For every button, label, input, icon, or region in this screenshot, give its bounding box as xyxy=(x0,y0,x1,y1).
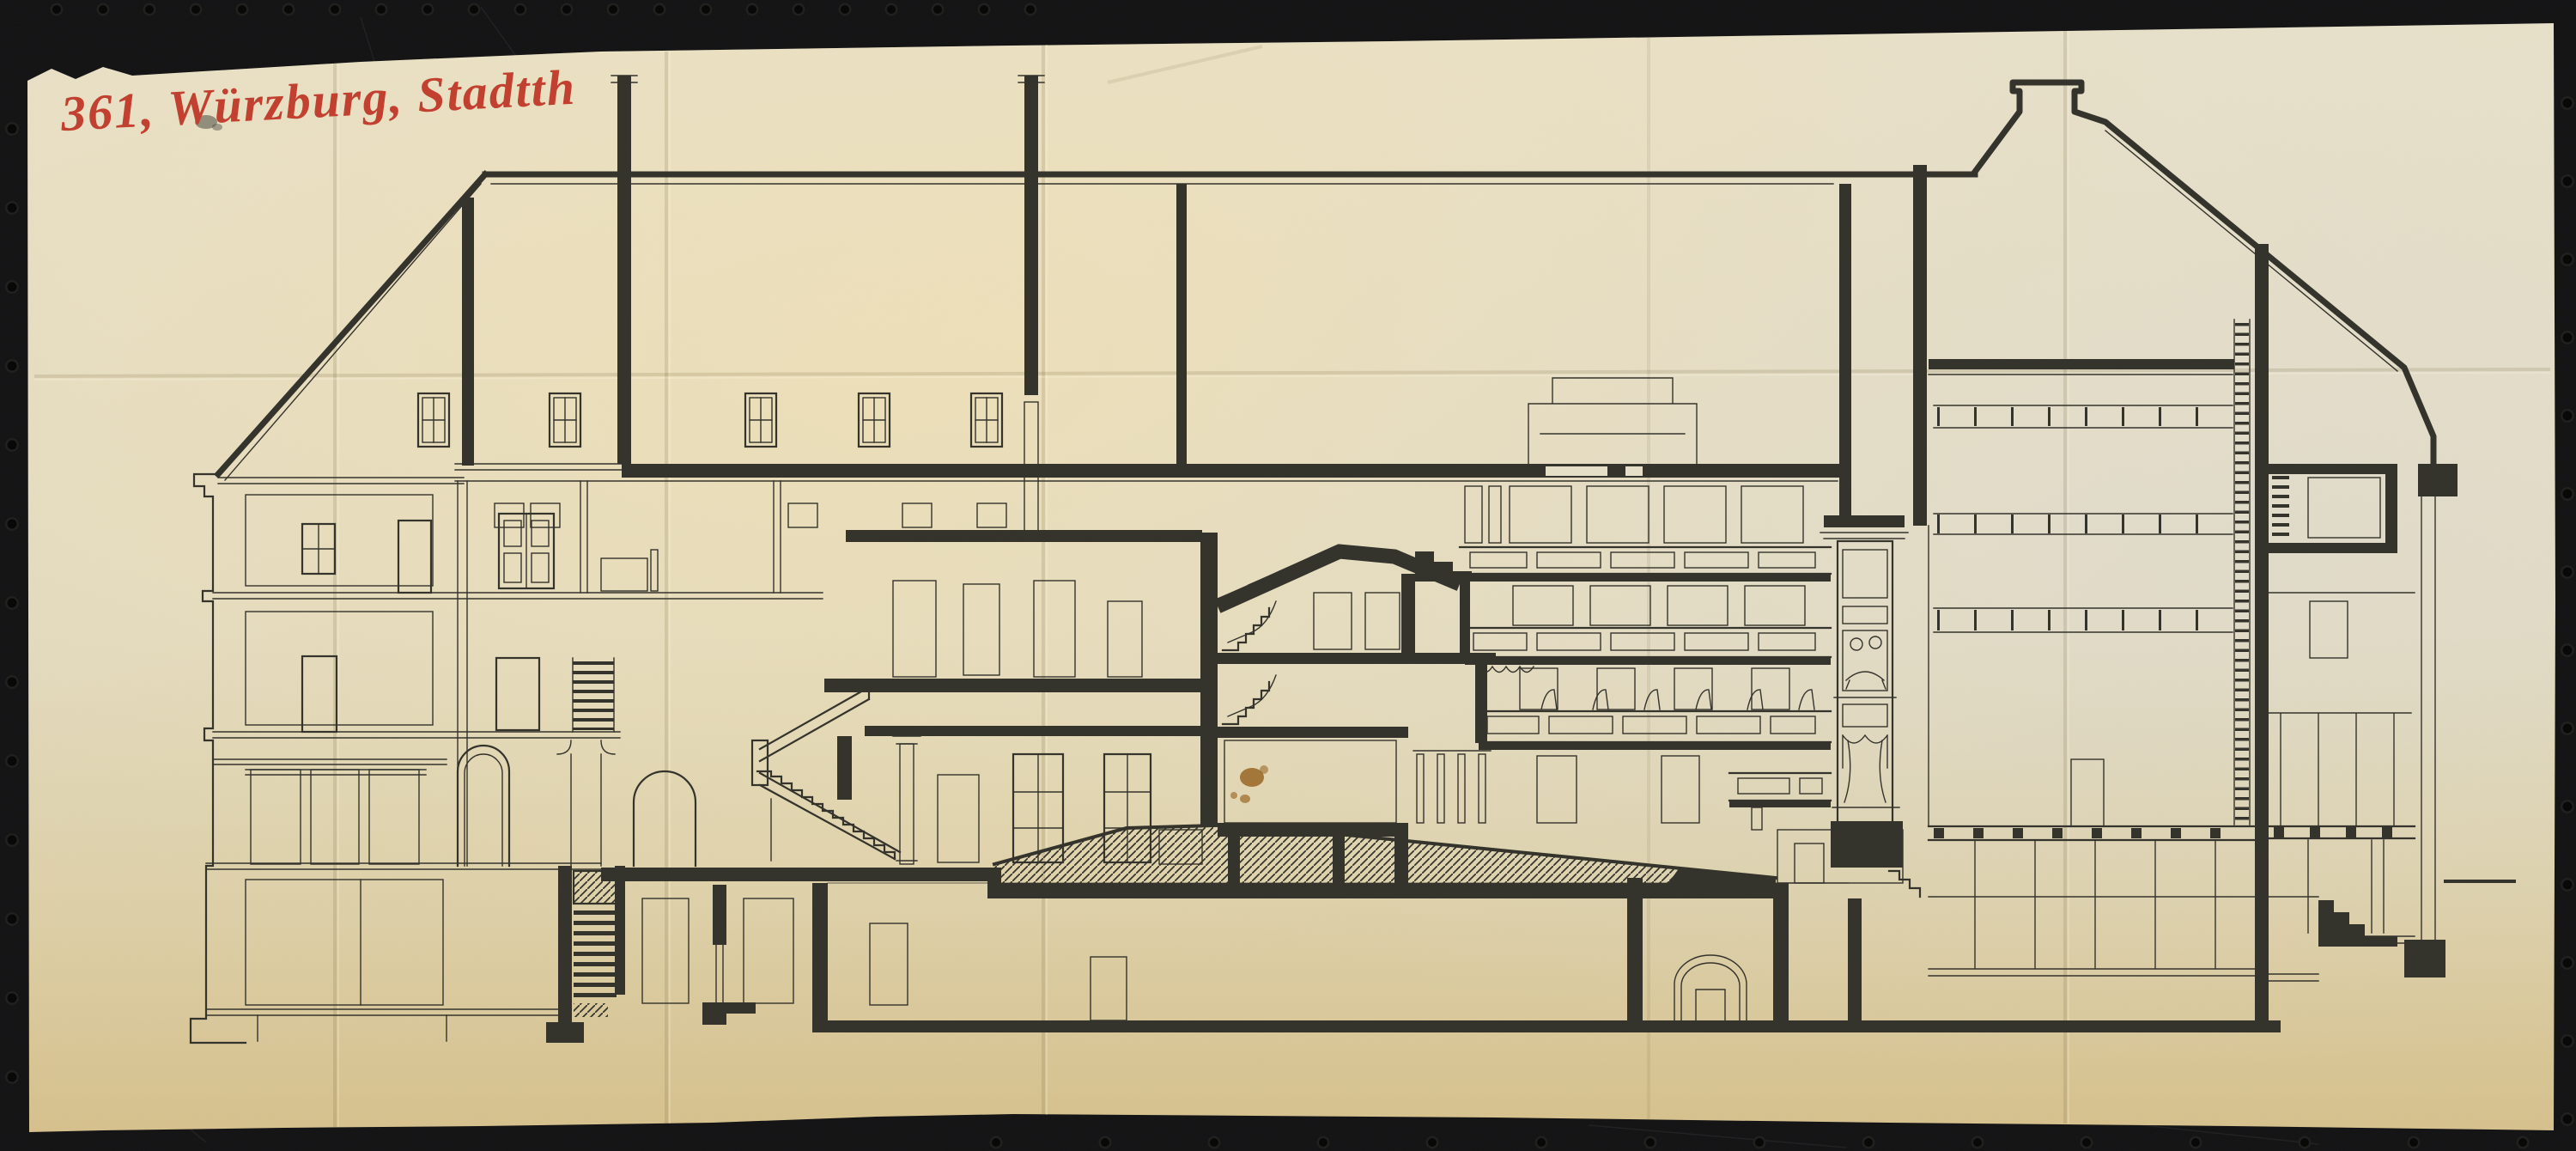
retaining-wall-footing xyxy=(2404,940,2445,977)
right-eave-block xyxy=(2418,464,2458,496)
scanned-drawing-sheet: 361, Würzburg, Stadtth xyxy=(0,0,2576,1151)
vestibule-ceiling-slab xyxy=(865,726,1218,736)
foyer-floor-slab xyxy=(824,679,1202,692)
scan-canvas: 361, Würzburg, Stadtth xyxy=(0,0,2576,1151)
